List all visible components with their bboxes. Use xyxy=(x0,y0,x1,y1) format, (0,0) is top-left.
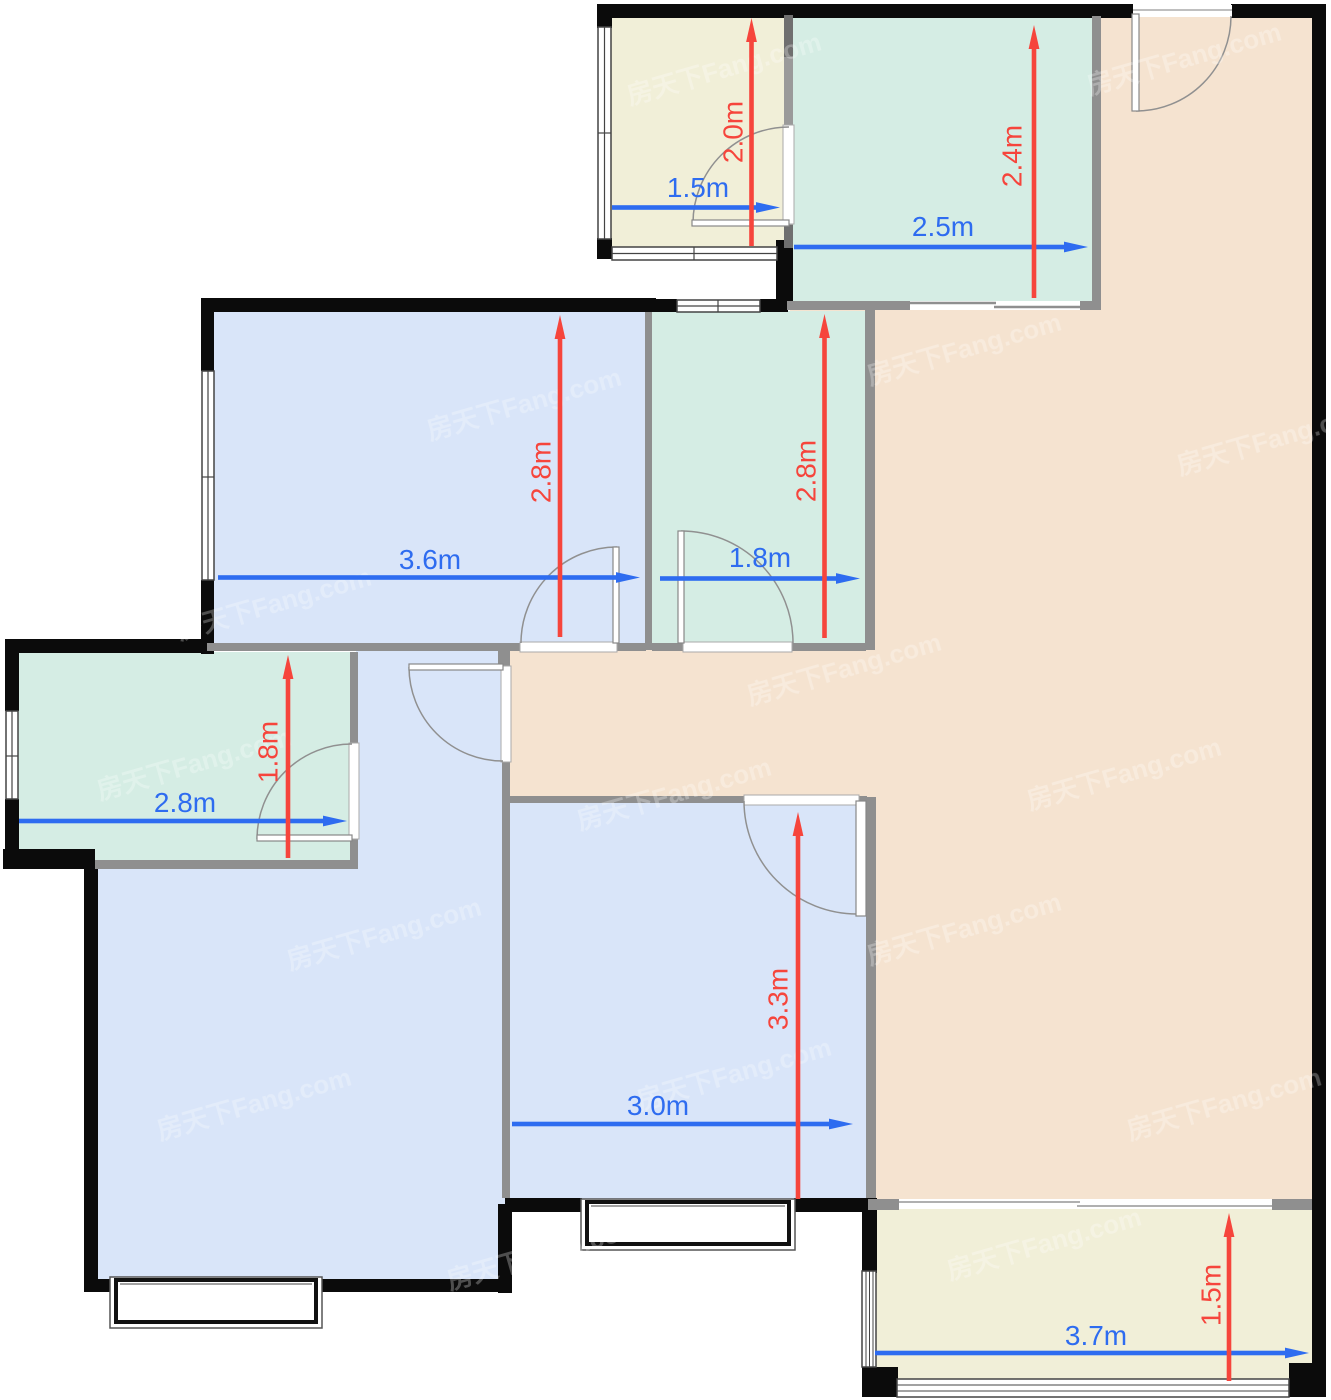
svg-text:2.8m: 2.8m xyxy=(526,441,557,503)
svg-text:1.5m: 1.5m xyxy=(1196,1264,1227,1326)
svg-text:3.3m: 3.3m xyxy=(763,968,794,1030)
svg-text:2.0m: 2.0m xyxy=(718,101,749,163)
svg-text:2.8m: 2.8m xyxy=(791,440,822,502)
svg-text:3.0m: 3.0m xyxy=(627,1090,689,1121)
svg-text:2.4m: 2.4m xyxy=(997,125,1028,187)
svg-text:2.8m: 2.8m xyxy=(154,787,216,818)
svg-text:1.8m: 1.8m xyxy=(253,721,284,783)
svg-text:2.5m: 2.5m xyxy=(912,211,974,242)
svg-text:3.6m: 3.6m xyxy=(399,544,461,575)
svg-text:1.8m: 1.8m xyxy=(729,542,791,573)
svg-text:1.5m: 1.5m xyxy=(667,172,729,203)
svg-text:3.7m: 3.7m xyxy=(1065,1320,1127,1351)
